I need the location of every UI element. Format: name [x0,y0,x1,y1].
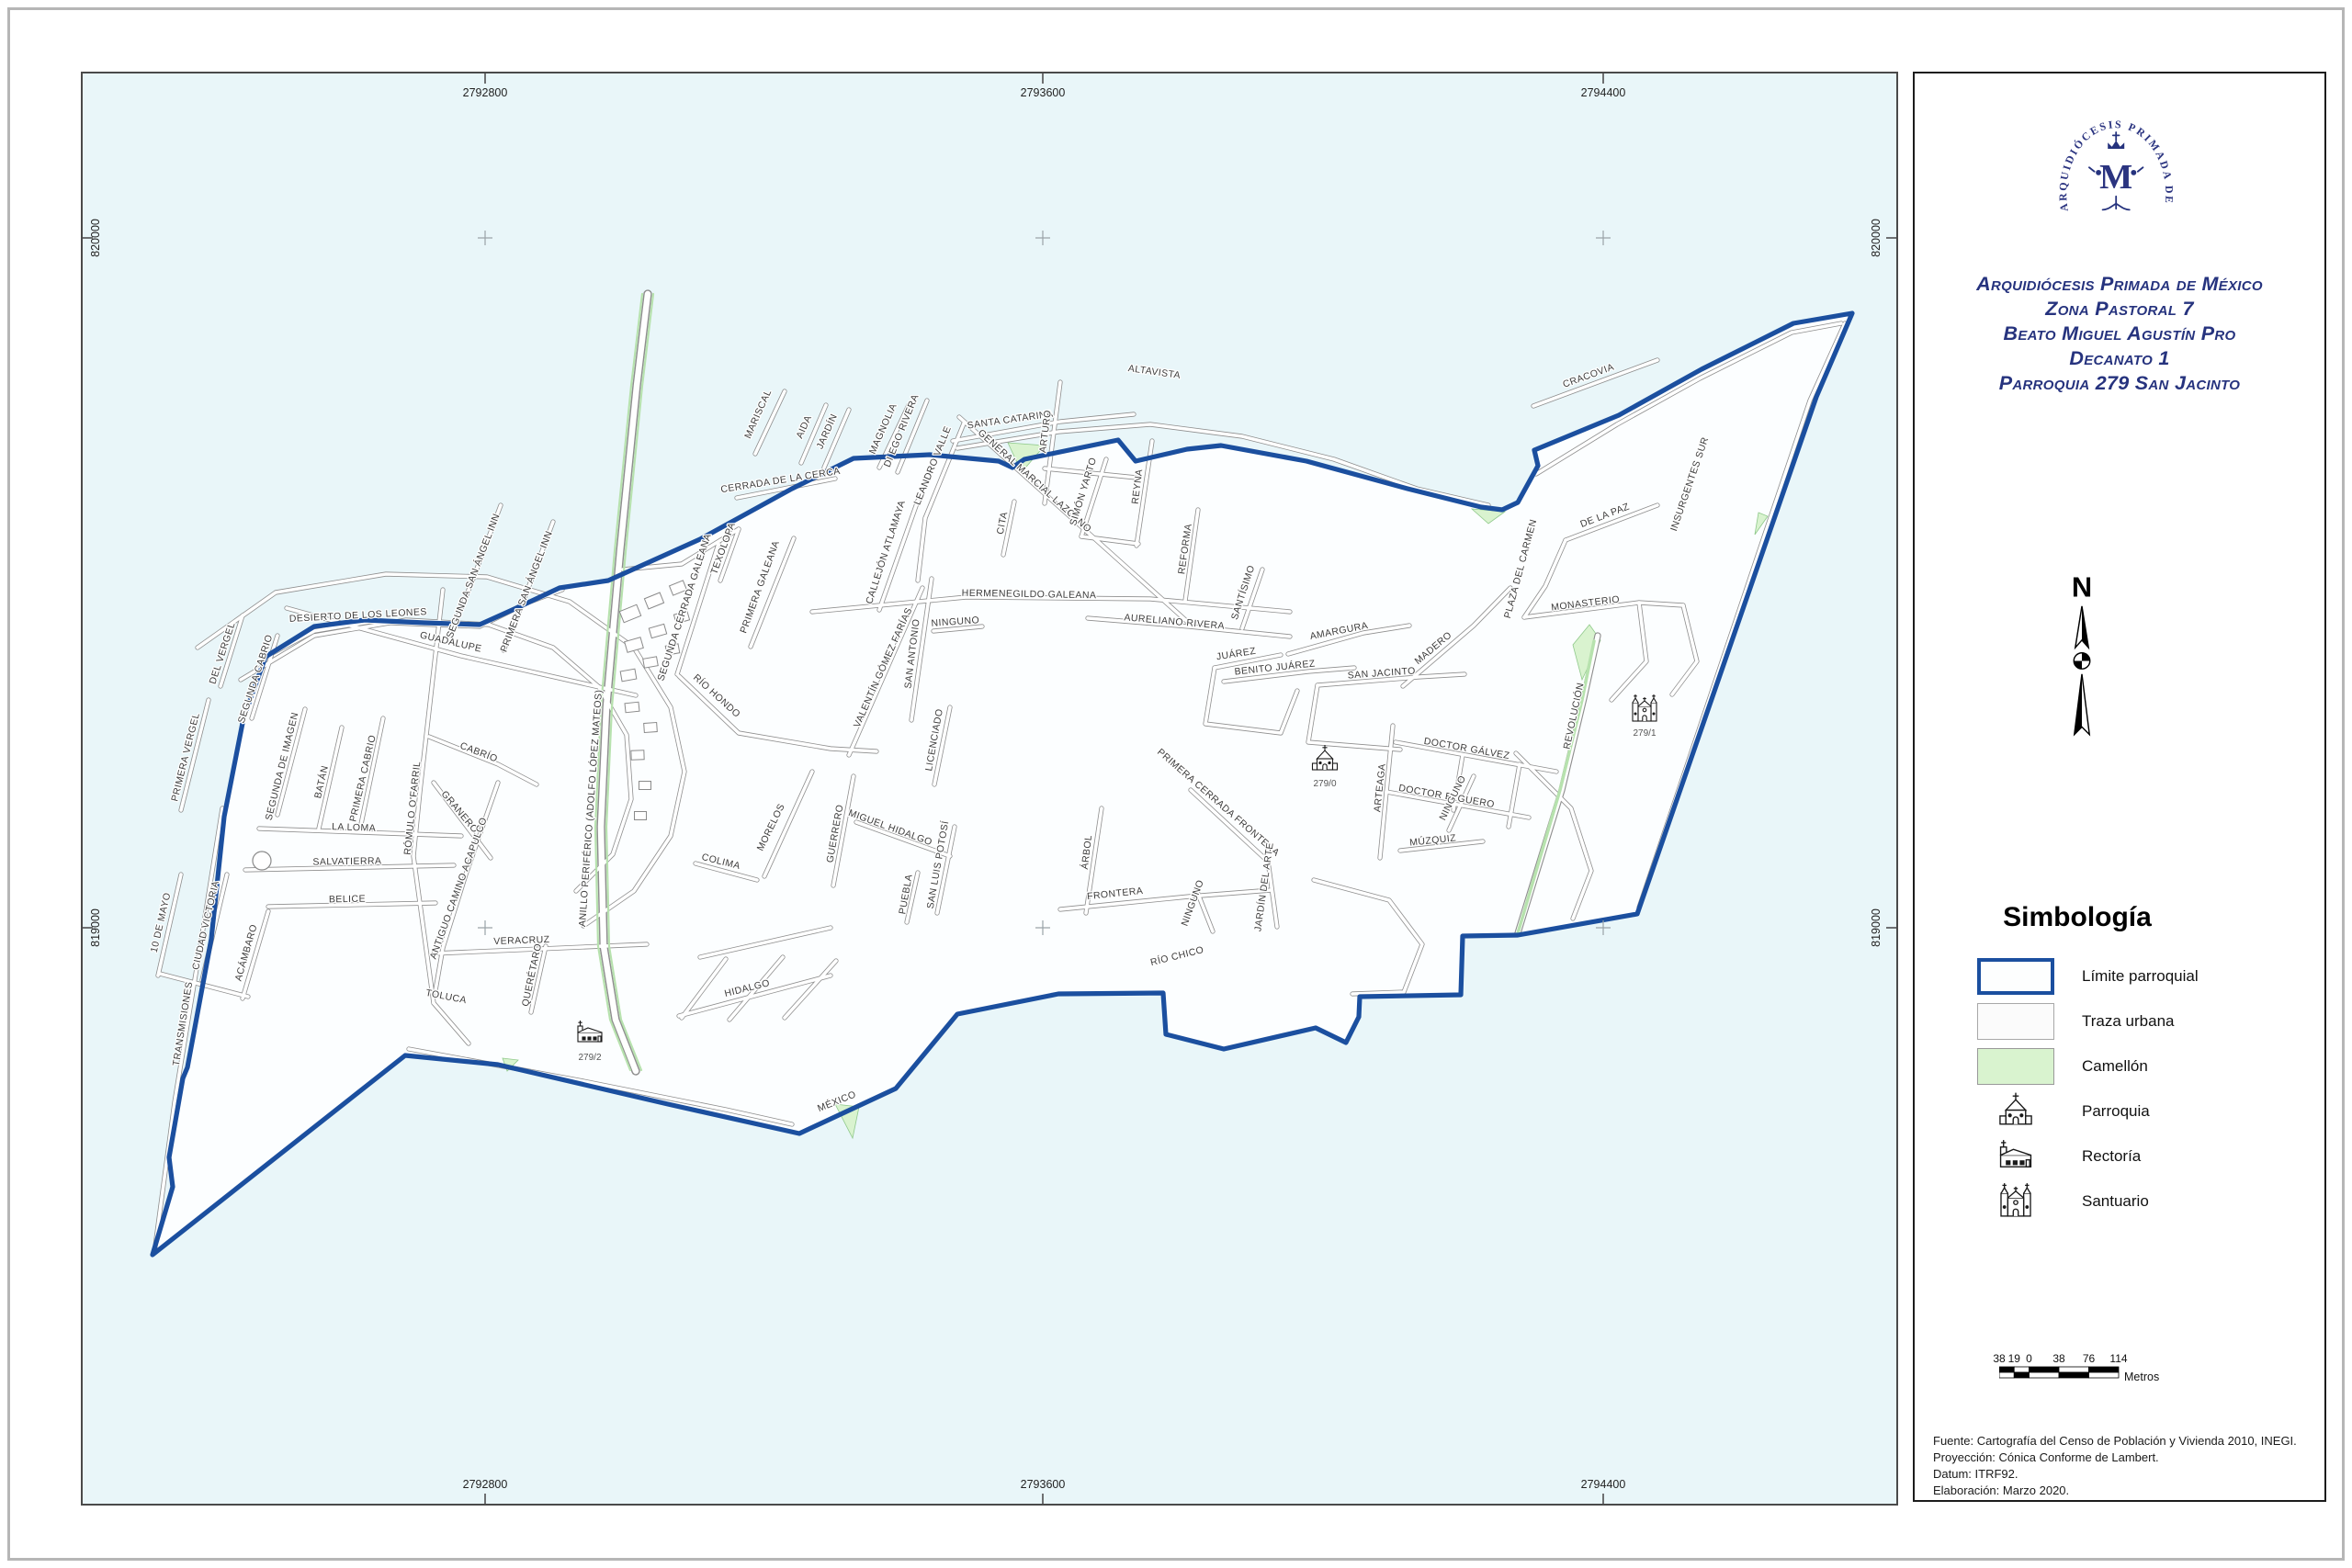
street-label: SALVATIERRA [312,855,381,867]
title-line-4: Decanato 1 [1915,346,2324,371]
camellon-swatch [1977,1048,2054,1085]
scale-bar-unit: Metros [2124,1371,2159,1383]
rectoria-label: 279/2 [578,1053,601,1063]
parroquia-church-icon [1996,1091,2036,1132]
map-canvas[interactable]: 279/0279/1279/2DESIERTO DE LOS LEONESTRA… [83,73,1896,1504]
street-label: MARISCAL [742,388,774,440]
street-label: LA LOMA [332,821,376,834]
rectoria-church-icon [1996,1136,2036,1177]
legend-item-rectoria: Rectoría [1962,1134,2266,1179]
svg-text:820000: 820000 [1870,219,1883,257]
title-line-3: Beato Miguel Agustín Pro [1915,321,2324,346]
legend-item-camellon: Camellón [1962,1043,2266,1089]
svg-text:2793600: 2793600 [1021,1478,1066,1491]
page: 279/0279/1279/2DESIERTO DE LOS LEONESTRA… [0,0,2352,1568]
source-line-1: Fuente: Cartografía del Censo de Poblaci… [1933,1433,2310,1450]
title-line-1: Arquidiócesis Primada de México [1915,272,2324,297]
source-note: Fuente: Cartografía del Censo de Poblaci… [1933,1433,2310,1499]
scale-bar-numbers: 381903876114 [1999,1352,2201,1365]
title-line-5: Parroquia 279 San Jacinto [1915,371,2324,396]
source-line-4: Elaboración: Marzo 2020. [1933,1483,2310,1499]
legend-title: Simbología [1962,902,2192,933]
info-panel: ARQUIDIÓCESIS PRIMADA DE MÉXICOM Arquidi… [1913,72,2326,1502]
svg-text:820000: 820000 [89,219,102,257]
legend-item-parroquia: Parroquia [1962,1089,2266,1134]
map-title: Arquidiócesis Primada de México Zona Pas… [1915,272,2324,396]
limite-parroquial-swatch [1977,958,2054,995]
svg-text:2792800: 2792800 [463,1478,508,1491]
diocese-seal: ARQUIDIÓCESIS PRIMADA DE MÉXICOM [2029,99,2203,265]
svg-text:819000: 819000 [89,908,102,947]
scale-bar: 381903876114 Metros [1999,1352,2201,1398]
svg-text:2794400: 2794400 [1581,1478,1626,1491]
legend-item-santuario: Santuario [1962,1179,2266,1224]
svg-text:2792800: 2792800 [463,86,508,99]
title-line-2: Zona Pastoral 7 [1915,297,2324,321]
legend-item-limite: Límite parroquial [1962,953,2266,998]
street-label: ALTAVISTA [1127,363,1182,381]
traza-urbana-swatch [1977,1003,2054,1040]
source-line-3: Datum: ITRF92. [1933,1466,2310,1483]
parroquia-label: 279/0 [1313,779,1336,789]
santuario-church-icon [1996,1181,2036,1222]
north-arrow-icon: N [2045,577,2119,747]
source-line-2: Proyección: Cónica Conforme de Lambert. [1933,1450,2310,1466]
scale-bar-graphic [1999,1366,2137,1381]
street-label: BELICE [329,894,366,906]
svg-text:819000: 819000 [1870,908,1883,947]
svg-text:2793600: 2793600 [1021,86,1066,99]
legend: Simbología Límite parroquial Traza urban… [1962,902,2266,1224]
svg-text:M: M [2099,158,2132,197]
svg-text:2794400: 2794400 [1581,86,1626,99]
street-label: HERMENEGILDO GALEANA [962,588,1097,602]
map-frame: 279/0279/1279/2DESIERTO DE LOS LEONESTRA… [81,72,1898,1506]
svg-text:N: N [2072,577,2092,604]
legend-item-traza: Traza urbana [1962,998,2266,1043]
santuario-label: 279/1 [1633,728,1656,739]
